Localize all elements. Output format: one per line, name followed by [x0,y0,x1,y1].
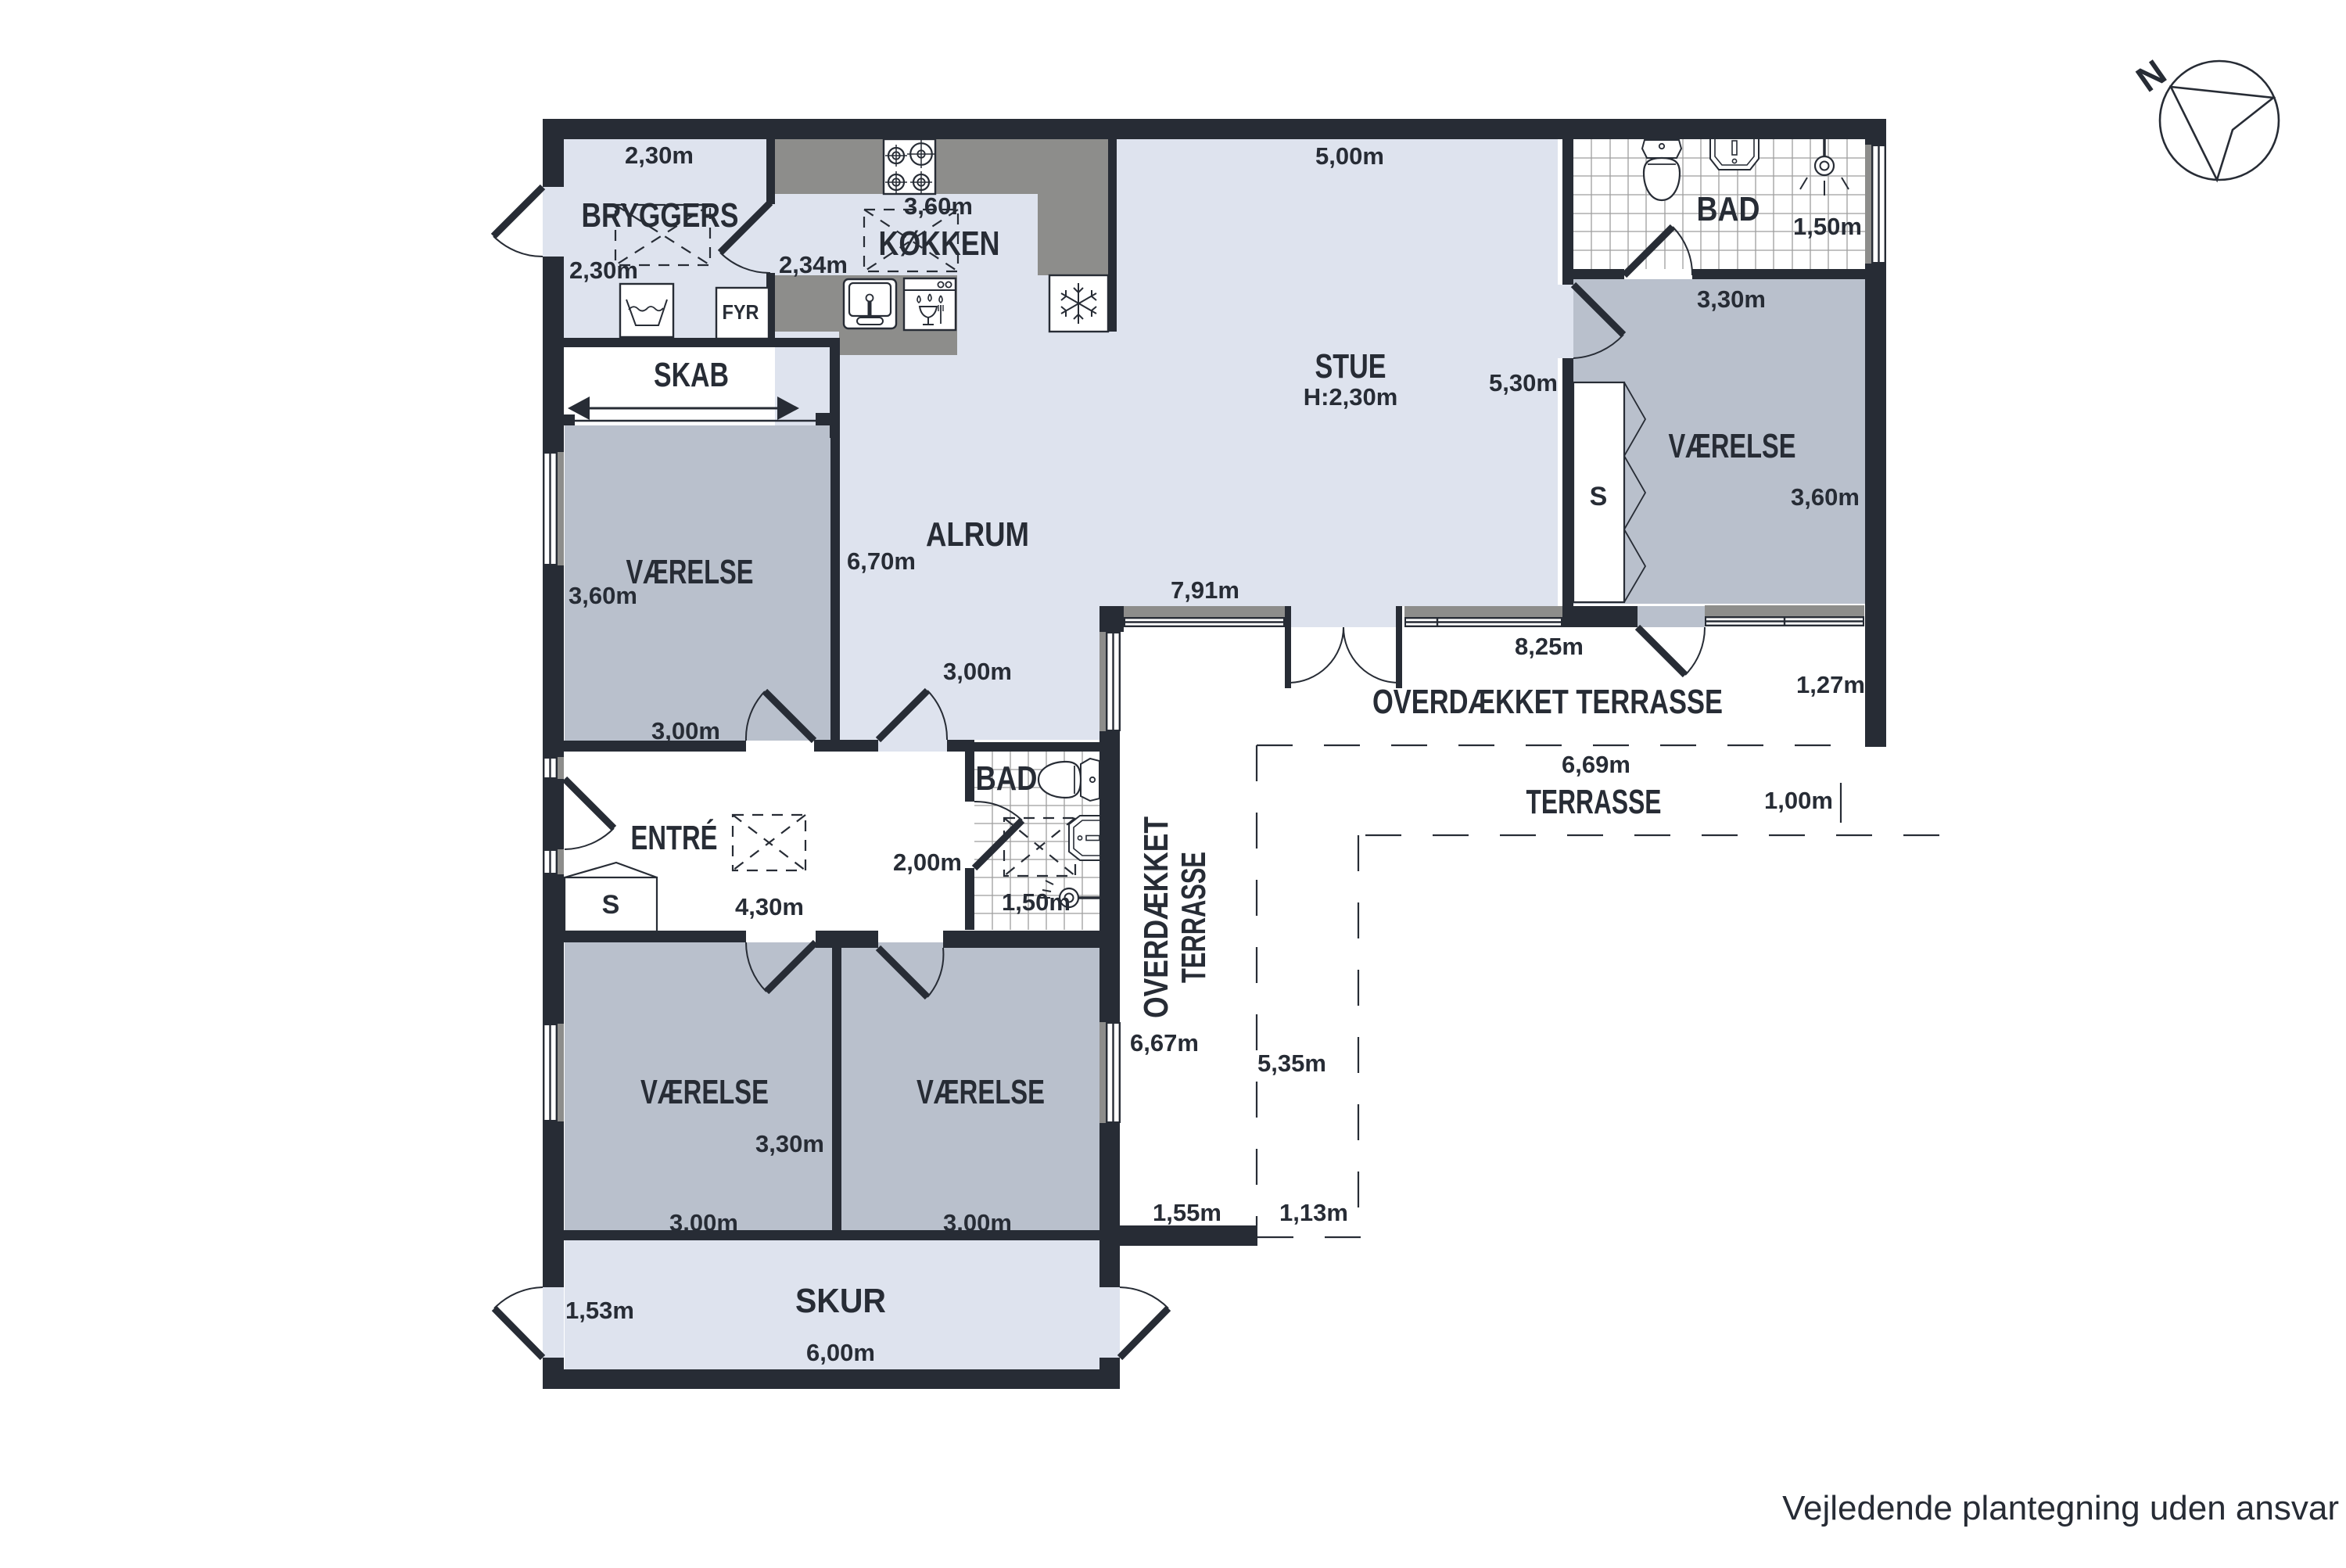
svg-text:STUE: STUE [1315,347,1386,386]
svg-text:6,00m: 6,00m [806,1339,875,1366]
svg-text:6,70m: 6,70m [847,547,916,575]
svg-text:7,91m: 7,91m [1171,576,1239,604]
svg-text:3,60m: 3,60m [904,192,973,220]
svg-text:SKAB: SKAB [654,356,729,394]
svg-text:1,50m: 1,50m [1793,213,1862,240]
svg-text:ALRUM: ALRUM [926,515,1029,554]
svg-text:5,00m: 5,00m [1315,142,1384,170]
svg-text:5,35m: 5,35m [1257,1050,1326,1077]
svg-text:6,69m: 6,69m [1562,751,1630,778]
svg-text:S: S [1590,482,1608,511]
svg-text:VÆRELSE: VÆRELSE [626,553,754,591]
svg-text:BAD: BAD [1697,190,1760,228]
svg-text:FYR: FYR [723,300,759,324]
svg-text:S: S [602,890,620,920]
svg-text:1,27m: 1,27m [1796,671,1865,698]
svg-text:OVERDÆKKET: OVERDÆKKET [1137,816,1175,1018]
svg-text:3,60m: 3,60m [1791,483,1860,511]
svg-text:4,30m: 4,30m [735,893,804,920]
svg-text:SKUR: SKUR [795,1282,886,1320]
svg-text:1,55m: 1,55m [1153,1199,1221,1226]
svg-text:VÆRELSE: VÆRELSE [640,1073,769,1111]
svg-text:1,53m: 1,53m [565,1297,634,1324]
svg-text:3,30m: 3,30m [1697,285,1766,313]
svg-text:8,25m: 8,25m [1515,633,1584,660]
svg-text:TERRASSE: TERRASSE [1526,783,1662,821]
svg-text:TERRASSE: TERRASSE [1175,852,1213,983]
svg-text:3,00m: 3,00m [943,658,1012,685]
svg-text:BRYGGERS: BRYGGERS [582,196,739,235]
svg-text:H:2,30m: H:2,30m [1304,383,1398,411]
svg-text:1,00m: 1,00m [1764,787,1833,814]
svg-text:ENTRÉ: ENTRÉ [631,818,718,857]
svg-text:2,30m: 2,30m [625,142,694,169]
svg-text:1,50m: 1,50m [1002,888,1071,916]
svg-text:1,13m: 1,13m [1279,1199,1348,1226]
svg-text:3,30m: 3,30m [755,1130,824,1157]
svg-text:VÆRELSE: VÆRELSE [1669,427,1796,465]
svg-text:3,00m: 3,00m [669,1209,738,1236]
svg-text:BAD: BAD [976,759,1038,798]
svg-text:VÆRELSE: VÆRELSE [917,1073,1045,1111]
svg-text:Vejledende plantegning uden an: Vejledende plantegning uden ansvar [1782,1489,2339,1527]
svg-text:3,00m: 3,00m [651,717,720,745]
svg-text:5,30m: 5,30m [1489,369,1558,396]
svg-text:2,34m: 2,34m [779,251,848,278]
svg-text:KØKKEN: KØKKEN [879,224,1000,263]
svg-text:3,60m: 3,60m [569,582,637,609]
svg-text:6,67m: 6,67m [1130,1029,1199,1057]
svg-text:2,30m: 2,30m [569,257,638,284]
svg-text:OVERDÆKKET TERRASSE: OVERDÆKKET TERRASSE [1372,683,1723,721]
svg-text:3,00m: 3,00m [943,1209,1012,1236]
svg-text:2,00m: 2,00m [893,849,962,876]
